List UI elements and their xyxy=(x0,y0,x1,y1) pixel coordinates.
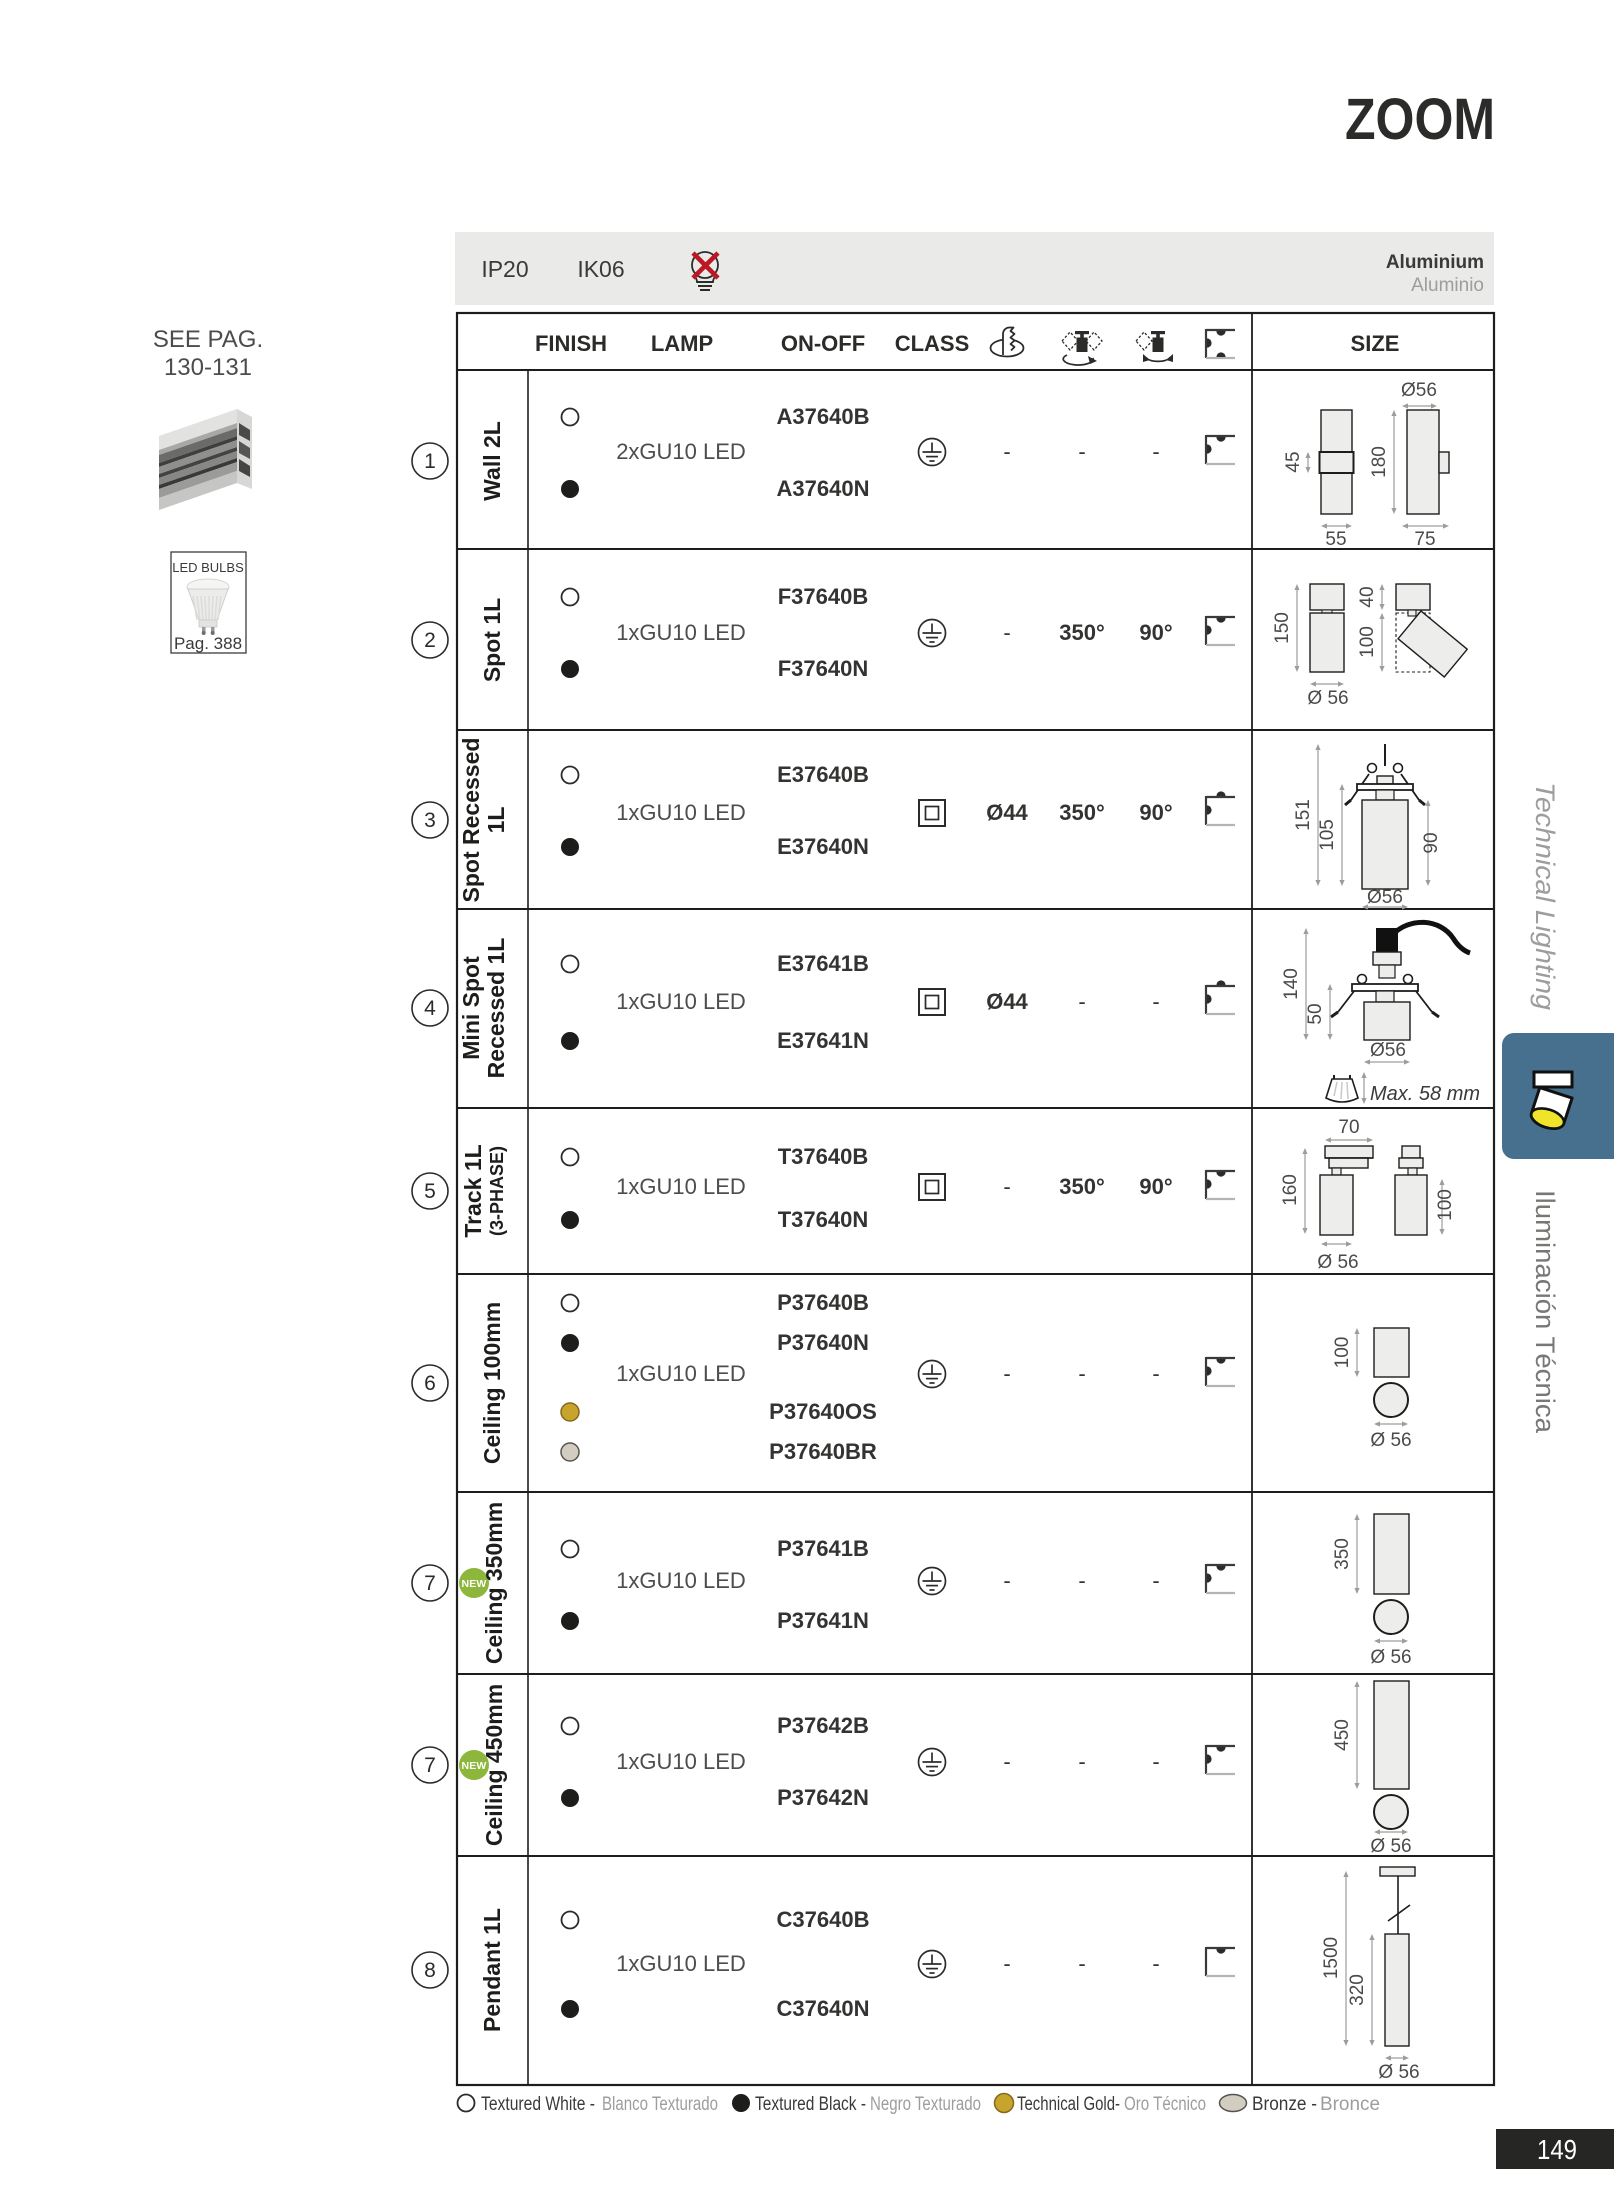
svg-text:SEE PAG.: SEE PAG. xyxy=(153,326,263,353)
svg-text:-: - xyxy=(1078,989,1085,1014)
svg-text:7: 7 xyxy=(424,1572,436,1595)
svg-text:F37640B: F37640B xyxy=(778,584,869,609)
svg-text:-: - xyxy=(1003,1749,1010,1774)
svg-text:Spot 1L: Spot 1L xyxy=(479,598,505,682)
svg-text:-: - xyxy=(1152,1568,1159,1593)
svg-text:105: 105 xyxy=(1317,819,1338,851)
svg-text:40: 40 xyxy=(1357,586,1378,607)
svg-text:P37641B: P37641B xyxy=(777,1536,869,1561)
svg-text:100: 100 xyxy=(1332,1337,1353,1369)
svg-text:Ø 56: Ø 56 xyxy=(1317,1252,1358,1273)
svg-text:C37640B: C37640B xyxy=(777,1907,870,1932)
svg-text:Aluminio: Aluminio xyxy=(1411,275,1484,296)
svg-text:90°: 90° xyxy=(1139,620,1172,645)
svg-text:2xGU10 LED: 2xGU10 LED xyxy=(616,439,746,464)
svg-text:-: - xyxy=(1003,1568,1010,1593)
svg-text:-: - xyxy=(1003,439,1010,464)
svg-text:1: 1 xyxy=(424,450,436,473)
svg-text:4: 4 xyxy=(424,997,436,1020)
svg-text:C37640N: C37640N xyxy=(777,1996,870,2021)
svg-text:A37640N: A37640N xyxy=(777,476,870,501)
svg-text:Technical Lighting: Technical Lighting xyxy=(1530,782,1560,1010)
svg-text:Ø56: Ø56 xyxy=(1367,887,1403,908)
svg-text:1xGU10 LED: 1xGU10 LED xyxy=(616,1174,746,1199)
svg-text:F37640N: F37640N xyxy=(778,656,869,681)
svg-text:Track 1L: Track 1L xyxy=(460,1144,486,1237)
svg-text:Ø 56: Ø 56 xyxy=(1307,688,1348,709)
svg-text:Ø 56: Ø 56 xyxy=(1370,1430,1411,1451)
svg-text:T37640B: T37640B xyxy=(778,1144,869,1169)
svg-text:Textured White -: Textured White - xyxy=(481,2094,595,2115)
svg-text:Ø56: Ø56 xyxy=(1401,380,1437,401)
svg-text:7: 7 xyxy=(424,1754,436,1777)
svg-text:Ceiling 100mm: Ceiling 100mm xyxy=(479,1302,505,1464)
svg-text:8: 8 xyxy=(424,1959,436,1982)
svg-text:2: 2 xyxy=(424,629,436,652)
svg-text:E37640B: E37640B xyxy=(777,762,869,787)
svg-text:E37640N: E37640N xyxy=(777,834,869,859)
svg-text:LED BULBS: LED BULBS xyxy=(172,560,244,575)
svg-text:-: - xyxy=(1152,439,1159,464)
svg-text:IP20: IP20 xyxy=(481,256,528,282)
svg-text:Ø56: Ø56 xyxy=(1370,1040,1406,1061)
svg-text:90°: 90° xyxy=(1139,1174,1172,1199)
svg-text:Ø44: Ø44 xyxy=(986,989,1028,1014)
svg-text:Aluminium: Aluminium xyxy=(1386,252,1484,273)
svg-text:P37641N: P37641N xyxy=(777,1608,869,1633)
svg-text:Technical Gold-: Technical Gold- xyxy=(1017,2094,1120,2115)
svg-text:Ø 56: Ø 56 xyxy=(1378,2062,1419,2083)
svg-text:Ceiling 450mm: Ceiling 450mm xyxy=(481,1684,507,1846)
svg-text:50: 50 xyxy=(1305,1003,1326,1024)
svg-text:140: 140 xyxy=(1281,968,1302,1000)
svg-text:Bronce: Bronce xyxy=(1320,2094,1380,2115)
svg-text:FINISH: FINISH xyxy=(535,331,607,356)
svg-text:1xGU10 LED: 1xGU10 LED xyxy=(616,1361,746,1386)
svg-text:1xGU10 LED: 1xGU10 LED xyxy=(616,800,746,825)
svg-text:A37640B: A37640B xyxy=(777,404,870,429)
svg-text:(3-PHASE): (3-PHASE) xyxy=(487,1146,507,1236)
svg-text:1xGU10 LED: 1xGU10 LED xyxy=(616,989,746,1014)
svg-text:IK06: IK06 xyxy=(577,256,624,282)
svg-text:-: - xyxy=(1003,1361,1010,1386)
svg-text:P37642B: P37642B xyxy=(777,1713,869,1738)
svg-text:CLASS: CLASS xyxy=(895,331,970,356)
svg-text:ON-OFF: ON-OFF xyxy=(781,331,865,356)
svg-text:LAMP: LAMP xyxy=(651,331,713,356)
svg-text:-: - xyxy=(1003,620,1010,645)
svg-text:350°: 350° xyxy=(1059,800,1105,825)
svg-text:3: 3 xyxy=(424,809,436,832)
svg-text:1xGU10 LED: 1xGU10 LED xyxy=(616,1749,746,1774)
svg-text:55: 55 xyxy=(1325,529,1346,550)
svg-text:1xGU10 LED: 1xGU10 LED xyxy=(616,1568,746,1593)
svg-text:Mini SpotRecessed 1L: Mini SpotRecessed 1L xyxy=(458,938,509,1079)
svg-text:Negro Texturado: Negro Texturado xyxy=(870,2094,981,2115)
svg-text:160: 160 xyxy=(1280,1174,1301,1206)
svg-text:T37640N: T37640N xyxy=(778,1207,869,1232)
svg-text:ZOOM: ZOOM xyxy=(1345,87,1495,152)
svg-text:100: 100 xyxy=(1435,1189,1456,1221)
svg-text:350°: 350° xyxy=(1059,1174,1105,1199)
svg-text:Ø 56: Ø 56 xyxy=(1370,1836,1411,1857)
svg-text:-: - xyxy=(1078,1749,1085,1774)
svg-text:P37642N: P37642N xyxy=(777,1785,869,1810)
svg-text:-: - xyxy=(1003,1174,1010,1199)
svg-text:151: 151 xyxy=(1293,799,1314,831)
svg-text:45: 45 xyxy=(1283,451,1304,472)
svg-text:-: - xyxy=(1152,989,1159,1014)
svg-text:Spot Recessed1L: Spot Recessed1L xyxy=(458,738,509,903)
svg-text:149: 149 xyxy=(1537,2134,1577,2165)
svg-text:Blanco Texturado: Blanco Texturado xyxy=(602,2094,718,2115)
svg-text:Pag. 388: Pag. 388 xyxy=(174,634,242,653)
svg-text:-: - xyxy=(1152,1749,1159,1774)
svg-text:70: 70 xyxy=(1338,1117,1359,1138)
svg-text:Wall 2L: Wall 2L xyxy=(479,421,505,501)
svg-text:-: - xyxy=(1078,1361,1085,1386)
svg-text:SIZE: SIZE xyxy=(1351,331,1400,356)
svg-text:150: 150 xyxy=(1272,612,1293,644)
svg-text:-: - xyxy=(1152,1951,1159,1976)
svg-text:Pendant 1L: Pendant 1L xyxy=(479,1908,505,2032)
svg-text:Oro Técnico: Oro Técnico xyxy=(1124,2094,1206,2115)
svg-text:-: - xyxy=(1078,1568,1085,1593)
svg-text:P37640OS: P37640OS xyxy=(769,1399,877,1424)
svg-text:90: 90 xyxy=(1421,832,1442,853)
svg-text:-: - xyxy=(1152,1361,1159,1386)
svg-text:1xGU10 LED: 1xGU10 LED xyxy=(616,620,746,645)
svg-text:5: 5 xyxy=(424,1180,436,1203)
svg-text:Textured Black -: Textured Black - xyxy=(755,2094,866,2115)
svg-text:180: 180 xyxy=(1369,446,1390,478)
svg-text:6: 6 xyxy=(424,1372,436,1395)
svg-text:90°: 90° xyxy=(1139,800,1172,825)
svg-text:Bronze -: Bronze - xyxy=(1252,2094,1317,2115)
svg-text:1500: 1500 xyxy=(1321,1937,1342,1979)
svg-text:Ø44: Ø44 xyxy=(986,800,1028,825)
svg-text:130-131: 130-131 xyxy=(164,354,252,381)
svg-text:1xGU10 LED: 1xGU10 LED xyxy=(616,1951,746,1976)
svg-text:350°: 350° xyxy=(1059,620,1105,645)
svg-text:75: 75 xyxy=(1414,529,1435,550)
svg-text:E37641N: E37641N xyxy=(777,1028,869,1053)
svg-text:450: 450 xyxy=(1332,1719,1353,1751)
svg-text:100: 100 xyxy=(1357,626,1378,658)
svg-text:-: - xyxy=(1078,1951,1085,1976)
svg-text:Iluminación Técnica: Iluminación Técnica xyxy=(1530,1190,1560,1434)
svg-text:P37640B: P37640B xyxy=(777,1290,869,1315)
svg-text:Ceiling 350mm: Ceiling 350mm xyxy=(481,1502,507,1664)
svg-text:E37641B: E37641B xyxy=(777,951,869,976)
svg-text:320: 320 xyxy=(1347,1974,1368,2006)
svg-text:Ø 56: Ø 56 xyxy=(1370,1647,1411,1668)
svg-text:-: - xyxy=(1003,1951,1010,1976)
svg-text:P37640BR: P37640BR xyxy=(769,1439,877,1464)
svg-text:Max. 58 mm: Max. 58 mm xyxy=(1370,1083,1480,1105)
svg-text:350: 350 xyxy=(1332,1538,1353,1570)
svg-text:-: - xyxy=(1078,439,1085,464)
svg-text:P37640N: P37640N xyxy=(777,1330,869,1355)
